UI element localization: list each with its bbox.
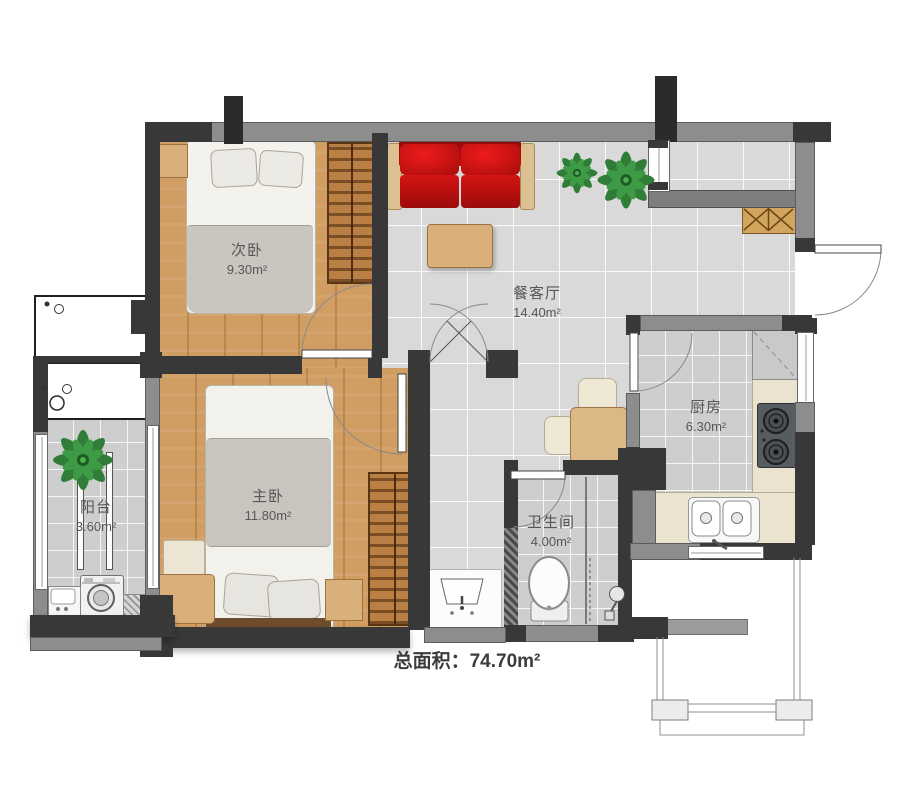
pillow [210, 148, 258, 188]
wall-kitchen-left-top [626, 315, 640, 335]
wall-entry-right [795, 142, 815, 250]
kitchen-cabinet [752, 330, 798, 380]
wall-nub [131, 300, 146, 334]
pillow [267, 578, 322, 622]
wall-kitchen-bath-junction [618, 448, 666, 490]
window-kitchen-bott om [688, 546, 764, 559]
pillow [258, 150, 304, 189]
stove [757, 403, 797, 468]
room-label-bathroom: 卫生间 4.00m² [501, 512, 601, 551]
room-name: 餐客厅 [487, 283, 587, 304]
wall-bathroom-top-left [504, 460, 516, 475]
wall-balcony-top [33, 356, 148, 363]
laundry-tub [48, 586, 81, 616]
wall-top-dark-left [145, 122, 212, 142]
pillar [224, 96, 243, 144]
wall-kitchen-left-strip [632, 490, 656, 546]
room-label-living-dining: 餐客厅 14.40m² [487, 283, 587, 322]
wall-bedroom-divider [145, 356, 302, 374]
wall-hall-stub [486, 350, 518, 378]
pillar [655, 76, 677, 142]
wall-master-bottom [158, 627, 410, 648]
floor-plan: 次卧 9.30m² 餐客厅 14.40m² 主卧 11.80m² 阳台 3.60… [0, 0, 912, 785]
room-area: 3.60m² [46, 518, 146, 536]
room-name: 阳台 [46, 497, 146, 518]
wall-entry-right-cap [795, 238, 815, 252]
master-nightstand-right [325, 579, 363, 621]
room-name: 厨房 [656, 397, 756, 418]
sofa-seat-cushion [461, 175, 520, 208]
wall-balcony-bottom-outer [30, 637, 162, 651]
room-label-balcony: 阳台 3.60m² [46, 497, 146, 536]
kitchen-sink [688, 497, 760, 543]
total-area-label: 总面积： [394, 651, 470, 672]
room-name: 卫生间 [501, 512, 601, 533]
coffee-table [427, 224, 493, 268]
room-name: 次卧 [197, 240, 297, 261]
room-label-kitchen: 厨房 6.30m² [656, 397, 756, 436]
room-label-master-bedroom: 主卧 11.80m² [218, 486, 318, 525]
entry-door [815, 245, 881, 315]
washing-machine [80, 575, 124, 617]
sofa [387, 141, 533, 210]
wall-kitchen-right [795, 402, 815, 434]
window-kitchen-right [797, 332, 814, 404]
wall-stub-exterior [666, 619, 748, 635]
room-area: 11.80m² [218, 507, 318, 525]
room-area: 14.40m² [487, 304, 587, 322]
wall-left-secondary [145, 140, 160, 362]
room-area: 4.00m² [501, 533, 601, 551]
sofa-seat-cushion [400, 175, 459, 208]
bathroom-vanity [428, 569, 502, 629]
window-balcony-divider [147, 425, 159, 589]
wall-balcony-left-dark [33, 356, 48, 432]
secondary-nightstand [156, 144, 188, 178]
window-cap [648, 182, 668, 190]
wall-kitchen-right-dark [795, 432, 815, 545]
wall-bathroom-bottom-dark [504, 625, 526, 642]
wall-stub-dark [628, 617, 668, 639]
wall-top-dark-right [793, 122, 831, 142]
total-area-value: 74.70m² [470, 651, 541, 672]
wall-top [145, 122, 831, 142]
wall-entry-corridor [648, 190, 812, 208]
room-name: 主卧 [218, 486, 318, 507]
balcony-laundry-counter [46, 362, 148, 420]
secondary-bed [186, 140, 316, 314]
sofa-armrest [520, 143, 535, 210]
sofa-back-cushion [400, 144, 459, 175]
room-area: 9.30m² [197, 261, 297, 279]
room-area: 6.30m² [656, 418, 756, 436]
secondary-wardrobe [327, 142, 377, 284]
shoe-cabinet [742, 207, 800, 234]
wall-door-jamb [368, 350, 382, 378]
wall-secondary-living-divider [372, 133, 388, 358]
sofa-back-cushion [461, 144, 520, 175]
window-cap [648, 140, 668, 148]
wall-hall-bottom [424, 627, 506, 643]
room-label-secondary-bedroom: 次卧 9.30m² [197, 240, 297, 279]
total-area: 总面积：74.70m² [382, 646, 552, 673]
wall-balcony-bottom [30, 615, 175, 637]
wall-master-right [408, 350, 430, 630]
